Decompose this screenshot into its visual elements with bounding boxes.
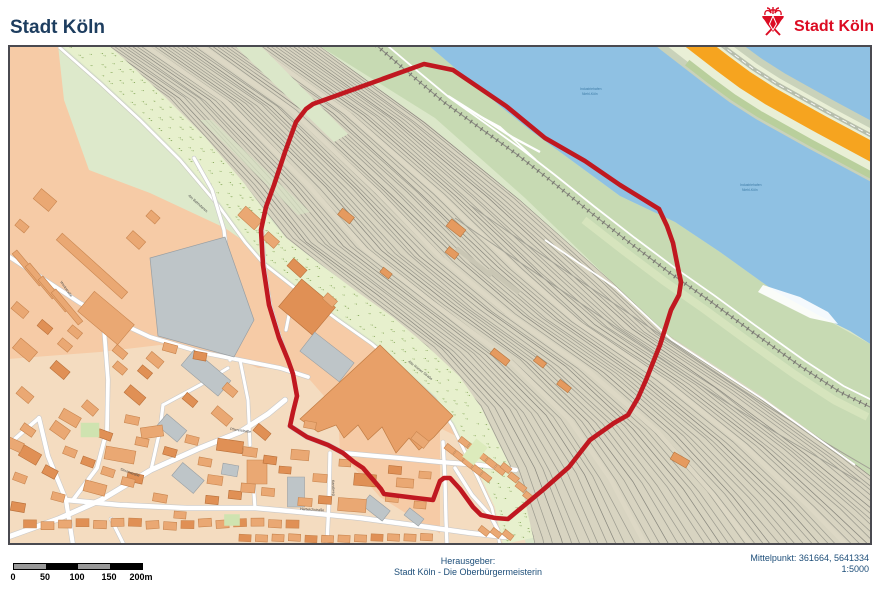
svg-text:Niehl-Köln: Niehl-Köln: [582, 92, 598, 96]
svg-text:Industriehafen: Industriehafen: [580, 87, 602, 91]
svg-text:Kanalweg: Kanalweg: [331, 480, 336, 496]
svg-text:Stadt Köln: Stadt Köln: [794, 18, 874, 35]
svg-text:Industriehafen: Industriehafen: [740, 183, 762, 187]
svg-text:Niehl-Köln: Niehl-Köln: [742, 188, 758, 192]
